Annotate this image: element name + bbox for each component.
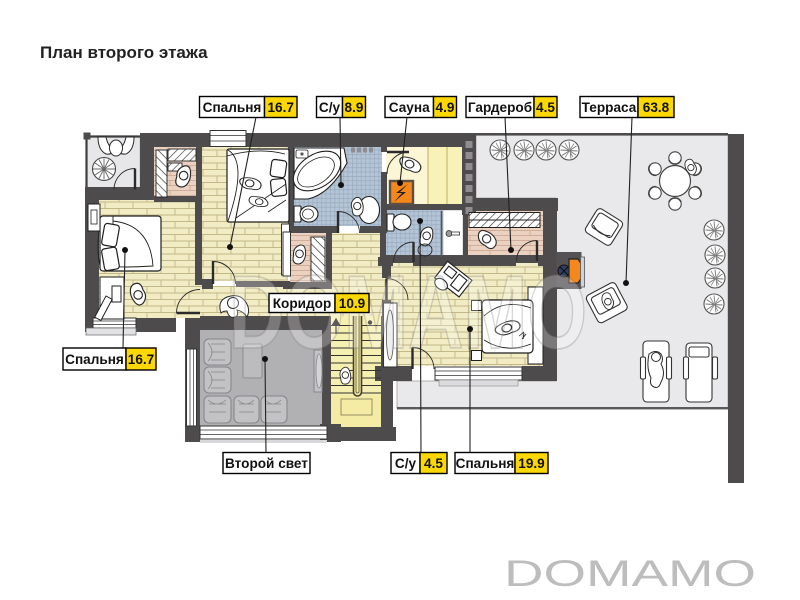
svg-text:19.9: 19.9 — [518, 456, 545, 471]
svg-text:63.8: 63.8 — [643, 100, 670, 115]
svg-text:10.9: 10.9 — [339, 296, 366, 311]
svg-text:Спальня: Спальня — [203, 100, 262, 115]
svg-text:Коридор: Коридор — [273, 296, 332, 311]
svg-text:DOMAMO: DOMAMO — [504, 553, 756, 594]
svg-text:4.9: 4.9 — [436, 100, 455, 115]
svg-text:8.9: 8.9 — [345, 100, 364, 115]
svg-text:План второго этажа: План второго этажа — [40, 43, 208, 62]
svg-text:Гардероб: Гардероб — [468, 100, 532, 115]
svg-text:Сауна: Сауна — [389, 100, 430, 115]
svg-text:16.7: 16.7 — [267, 100, 293, 115]
svg-text:16.7: 16.7 — [128, 352, 154, 367]
svg-text:Спальня: Спальня — [456, 456, 515, 471]
svg-text:Спальня: Спальня — [65, 352, 124, 367]
svg-text:Терраса: Терраса — [582, 100, 637, 115]
svg-text:Второй свет: Второй свет — [225, 456, 308, 471]
svg-text:4.5: 4.5 — [424, 456, 443, 471]
svg-text:С/у: С/у — [319, 100, 341, 115]
svg-text:4.5: 4.5 — [536, 100, 555, 115]
svg-text:С/у: С/у — [395, 456, 417, 471]
